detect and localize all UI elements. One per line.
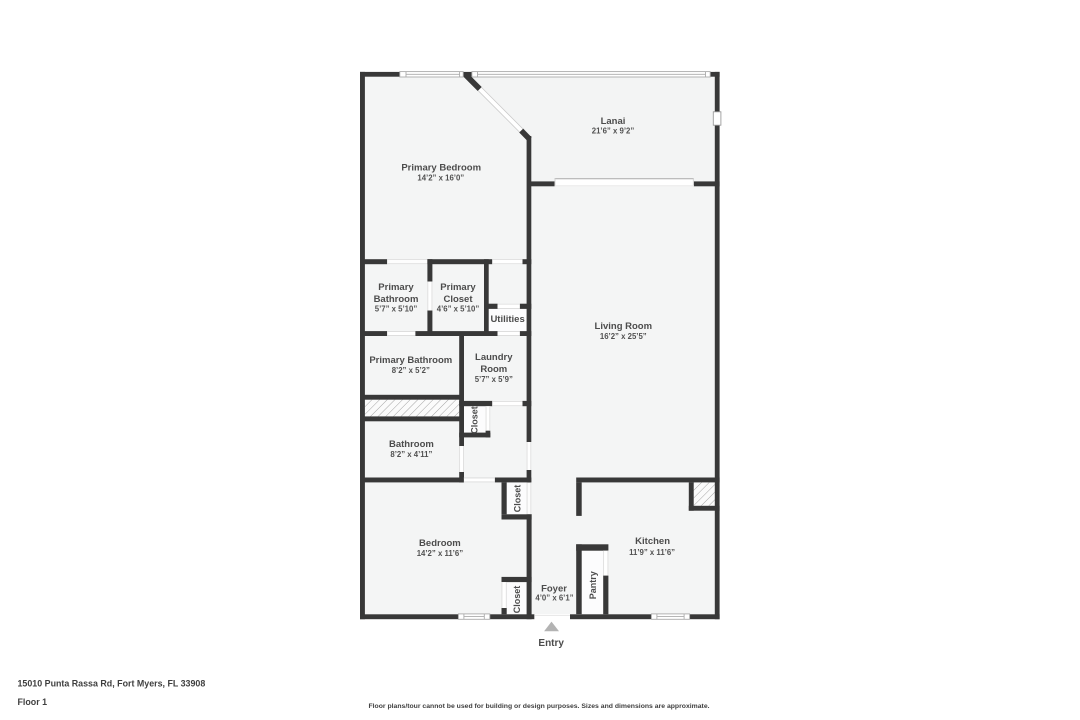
svg-text:15010 Punta Rassa Rd, Fort Mye: 15010 Punta Rassa Rd, Fort Myers, FL 339… [18,679,206,689]
svg-text:Floor 1: Floor 1 [18,697,48,707]
svg-text:Room: Room [480,364,507,375]
svg-text:Entry: Entry [538,638,564,649]
svg-text:14’2” x 11’6”: 14’2” x 11’6” [417,549,463,558]
svg-text:5’7” x 5’10”: 5’7” x 5’10” [375,304,418,313]
svg-text:Living Room: Living Room [595,321,653,332]
svg-text:Floor plans/tour cannot be use: Floor plans/tour cannot be used for buil… [368,703,709,710]
svg-text:Kitchen: Kitchen [635,536,670,547]
svg-text:Bedroom: Bedroom [419,538,461,549]
svg-text:Primary Bathroom: Primary Bathroom [369,355,452,366]
svg-text:Closet: Closet [512,485,522,513]
svg-text:11’9” x 11’6”: 11’9” x 11’6” [629,548,675,557]
svg-text:Laundry: Laundry [475,352,513,363]
svg-text:Primary Bedroom: Primary Bedroom [401,163,481,174]
svg-text:Primary: Primary [440,282,476,293]
svg-text:Closet: Closet [512,586,522,614]
svg-text:14’2” x 16’0”: 14’2” x 16’0” [417,174,464,183]
svg-text:Primary: Primary [378,282,414,293]
svg-text:Closet: Closet [469,406,479,434]
svg-text:8’2” x 4’11”: 8’2” x 4’11” [390,450,432,459]
svg-text:Pantry: Pantry [588,571,598,599]
svg-text:8’2” x 5’2”: 8’2” x 5’2” [392,366,430,375]
svg-text:Utilities: Utilities [490,314,524,325]
svg-text:5’7” x 5’9”: 5’7” x 5’9” [475,375,513,384]
svg-text:Bathroom: Bathroom [389,439,434,450]
svg-text:4’0” x 6’1”: 4’0” x 6’1” [535,593,573,602]
svg-text:Bathroom: Bathroom [374,294,419,305]
svg-text:Closet: Closet [443,294,473,305]
svg-text:16’2” x 25’5”: 16’2” x 25’5” [600,332,647,341]
svg-text:21’6” x 9’2”: 21’6” x 9’2” [592,127,635,136]
svg-text:Lanai: Lanai [601,116,626,127]
svg-text:4’6” x 5’10”: 4’6” x 5’10” [437,304,480,313]
